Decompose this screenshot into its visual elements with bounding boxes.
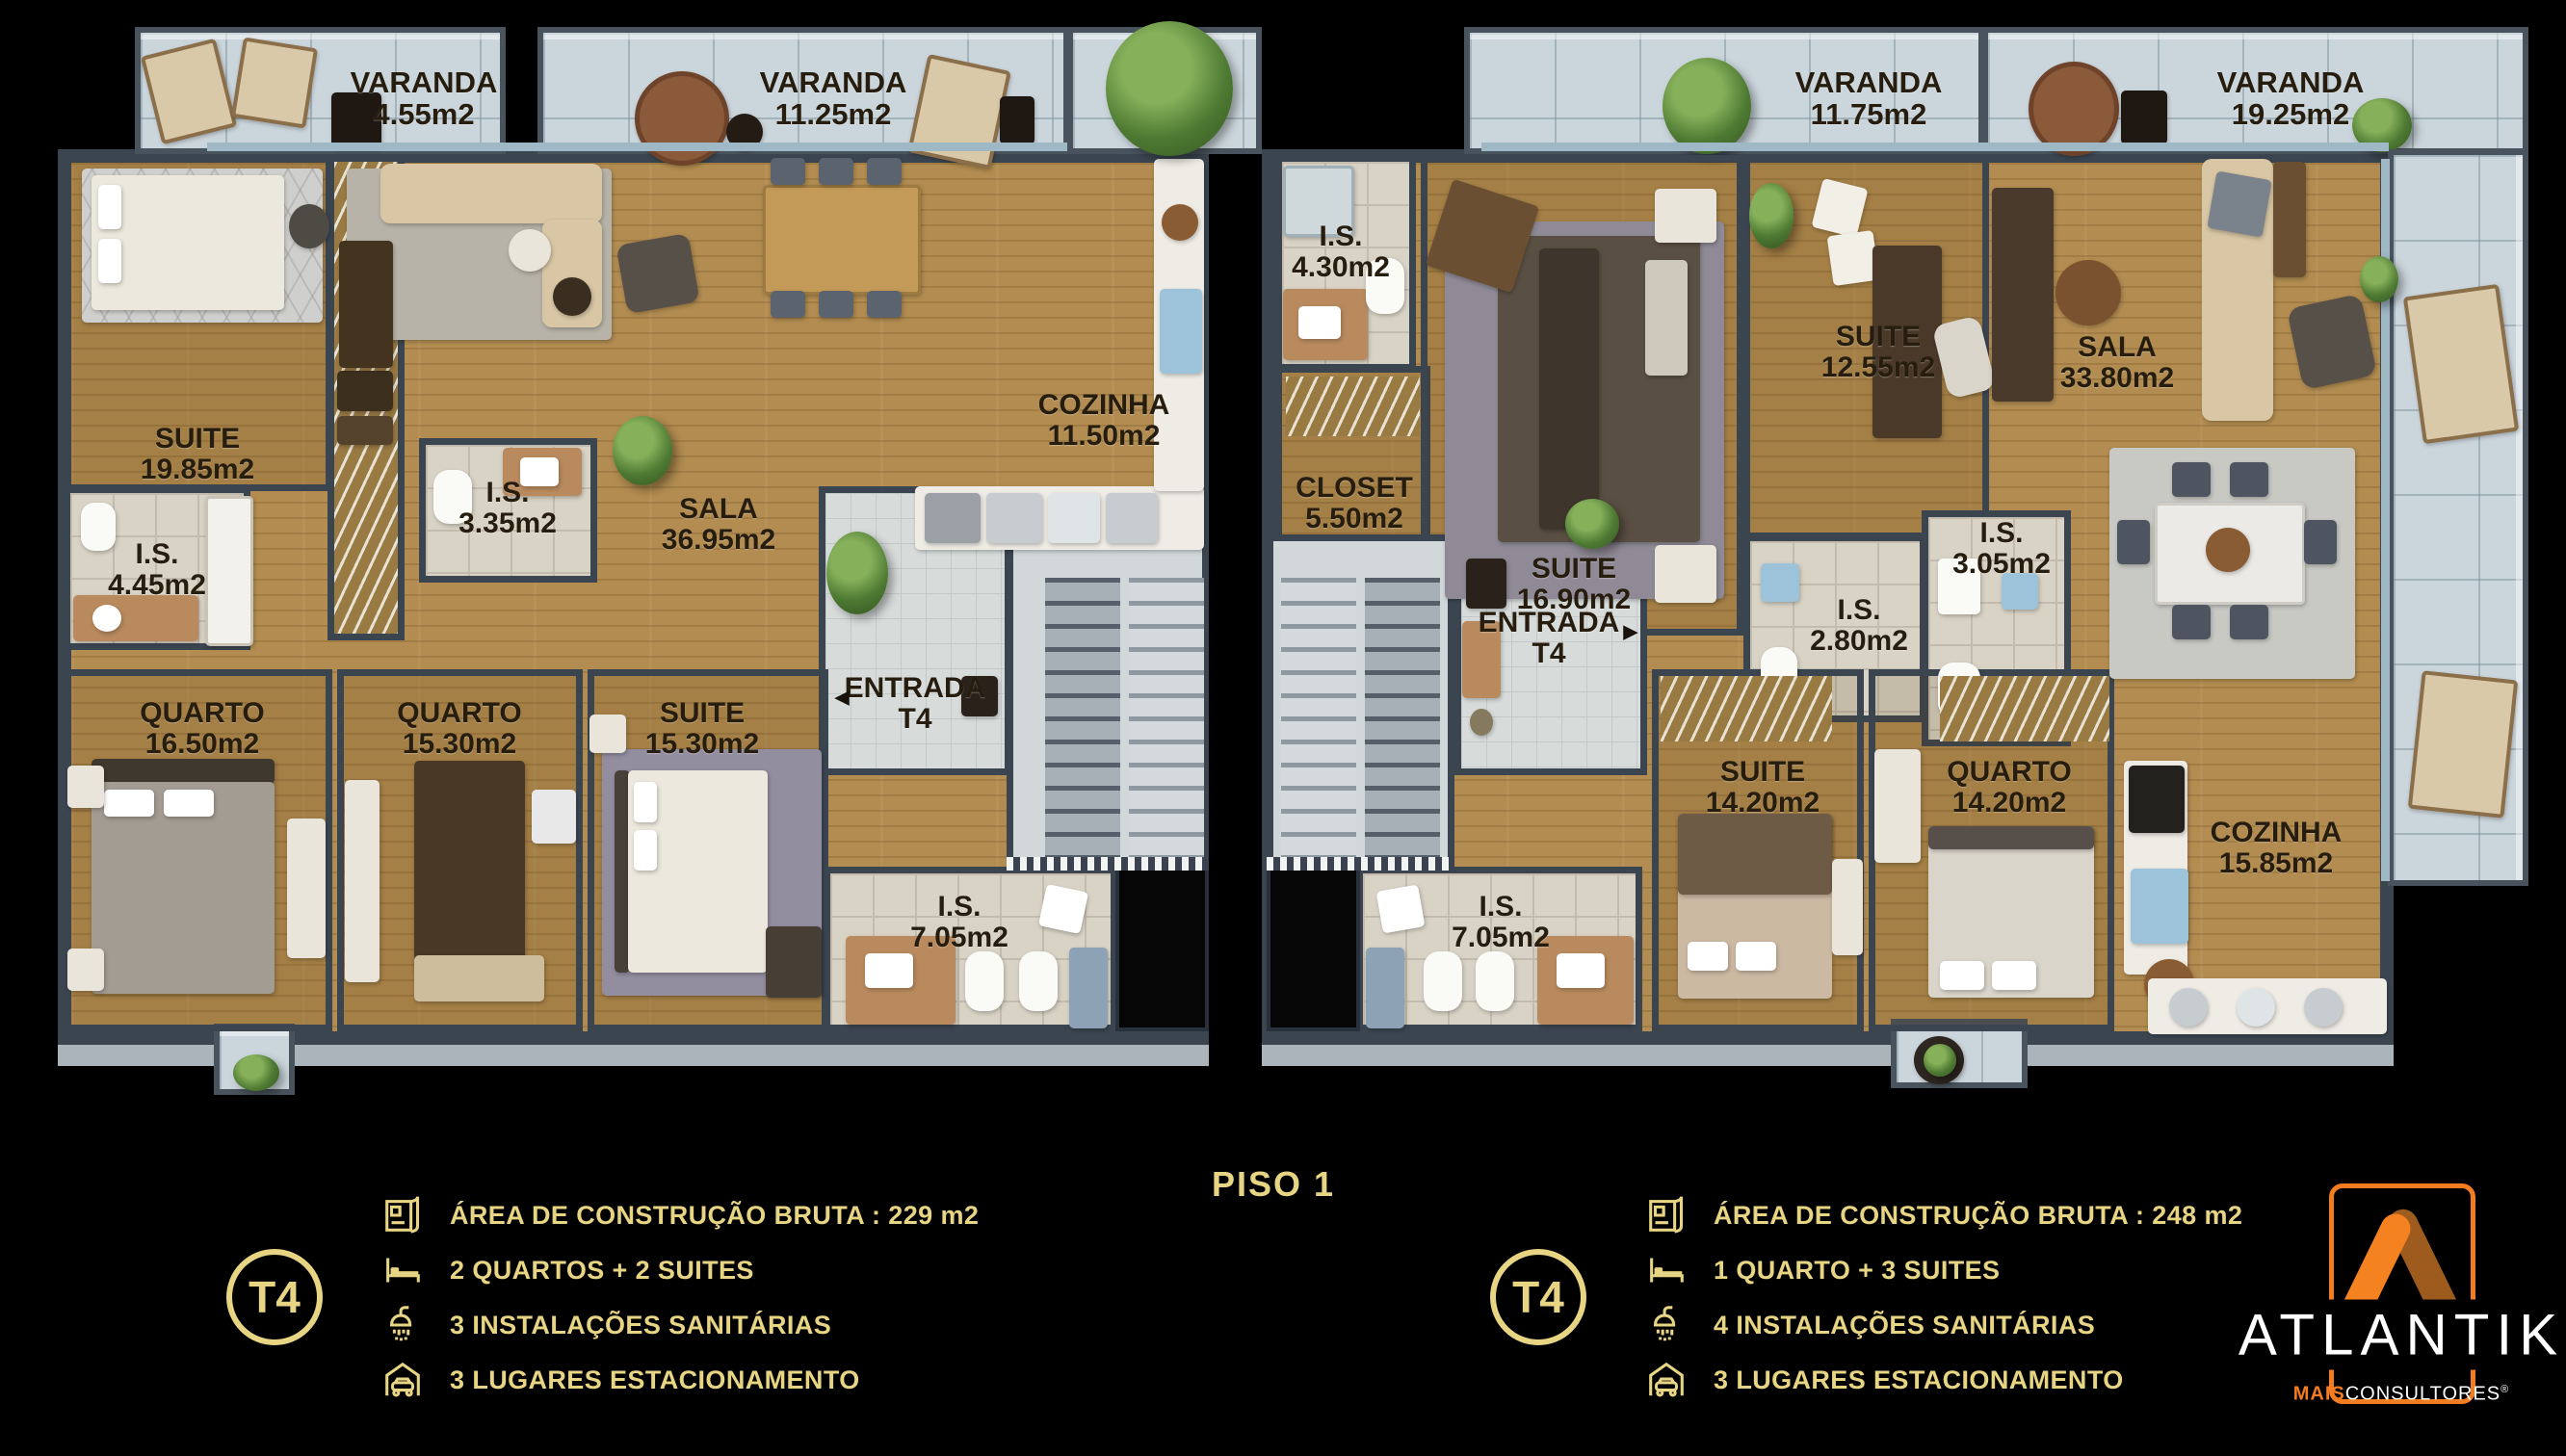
balcony-stub-left <box>214 1024 295 1095</box>
floor-mat <box>2121 91 2167 144</box>
plant <box>1924 1044 1956 1077</box>
stair-threshold <box>1267 857 1454 871</box>
bench <box>766 926 822 998</box>
sink <box>865 953 913 988</box>
chair <box>2230 605 2268 639</box>
legend-row: ÁREA DE CONSTRUÇÃO BRUTA : 229 m2 <box>380 1190 979 1240</box>
pillow <box>104 790 154 817</box>
balcony-label: VARANDA11.25m2 <box>760 66 907 130</box>
brand-sub-bold: MAIS <box>2293 1384 2345 1405</box>
shower-icon <box>1644 1303 1689 1347</box>
legend-value: 229 m2 <box>888 1201 979 1230</box>
sink <box>1298 306 1341 339</box>
room-label: SUITE14.20m2 <box>1706 757 1820 819</box>
floor-mat <box>1466 559 1506 609</box>
pillow <box>98 239 121 283</box>
legend-label: 3 INSTALAÇÕES SANITÁRIAS <box>450 1311 831 1339</box>
pouf-chair <box>289 204 329 248</box>
unit-type-badge: T4 <box>226 1249 323 1345</box>
plant <box>1749 183 1794 248</box>
nightstand <box>589 715 626 753</box>
chair <box>867 291 902 318</box>
plant <box>826 532 888 614</box>
room-label: QUARTO15.30m2 <box>397 698 521 760</box>
appliance <box>1048 493 1100 543</box>
unit-type-badge: T4 <box>1490 1249 1586 1345</box>
record-player <box>532 790 576 844</box>
chair <box>867 158 902 185</box>
floor-plan-icon <box>1644 1193 1689 1237</box>
appliance <box>2304 988 2343 1027</box>
chair <box>2117 520 2150 564</box>
sink <box>92 605 121 632</box>
centerpiece <box>2206 528 2250 572</box>
window-strip <box>207 143 1067 151</box>
room-label: COZINHA15.85m2 <box>2211 818 2343 879</box>
table <box>414 761 525 973</box>
garage-icon <box>1644 1358 1689 1402</box>
hanging-chair <box>635 71 729 166</box>
stair-flight <box>1365 578 1440 867</box>
balcony-label: VARANDA19.25m2 <box>2217 66 2365 130</box>
toilet <box>965 951 1004 1011</box>
chair <box>2304 520 2337 564</box>
entrance-arrow-icon: ◄ <box>829 683 854 713</box>
floor-plan-icon <box>380 1193 425 1237</box>
legend-label: 4 INSTALAÇÕES SANITÁRIAS <box>1714 1311 2095 1339</box>
chair <box>2172 605 2211 639</box>
kitchen-sink <box>2131 869 2188 944</box>
wardrobe <box>1940 676 2109 741</box>
stair-flight <box>1129 578 1204 867</box>
room-label: SUITE15.30m2 <box>645 698 759 760</box>
brand-subtitle: MAISCONSULTORES® <box>2293 1384 2510 1406</box>
shower-panel <box>1069 948 1108 1028</box>
legend-row: 3 LUGARES ESTACIONAMENTO <box>1644 1355 2124 1405</box>
legend-row: 3 INSTALAÇÕES SANITÁRIAS <box>380 1300 831 1350</box>
floor-plan-canvas: VARANDA4.55m2 VARANDA11.25m2 VARANDA11.7… <box>0 0 2566 1456</box>
room-label: I.S.3.05m2 <box>1952 518 2051 580</box>
bed-icon <box>1644 1248 1689 1292</box>
toilet <box>1476 951 1514 1011</box>
plant <box>1565 499 1619 549</box>
stair-flight <box>1045 578 1120 867</box>
balcony-label: VARANDA11.75m2 <box>1795 66 1943 130</box>
towel <box>1376 885 1426 934</box>
tv-console <box>339 241 393 368</box>
chair <box>771 291 805 318</box>
plant <box>613 416 672 485</box>
console <box>2273 162 2306 277</box>
pillow <box>1992 961 2036 990</box>
balcony-right-side <box>2388 149 2528 886</box>
legend-row: 2 QUARTOS + 2 SUITES <box>380 1245 754 1295</box>
room-label: ENTRADAT4 <box>1479 608 1620 669</box>
wardrobe-box <box>337 416 393 445</box>
deck-chair <box>907 54 1011 169</box>
pillow <box>1688 942 1728 971</box>
bed-icon <box>380 1248 425 1292</box>
window-strip <box>1481 143 2389 151</box>
shower-icon <box>380 1303 425 1347</box>
appliance <box>2237 988 2275 1027</box>
nightstand <box>1655 545 1716 603</box>
brand-name: ATLANTIK <box>2229 1300 2566 1370</box>
cooktop <box>925 493 981 543</box>
legend-label: 3 LUGARES ESTACIONAMENTO <box>450 1365 860 1394</box>
room-label: I.S.7.05m2 <box>1452 892 1550 953</box>
balcony-label: VARANDA4.55m2 <box>351 66 498 130</box>
plant <box>233 1054 279 1091</box>
chair <box>819 291 853 318</box>
nightstand <box>1655 189 1716 243</box>
chair <box>2172 462 2211 497</box>
wardrobe-box <box>1874 749 1921 863</box>
pillow <box>164 790 214 817</box>
bed-throw <box>1678 814 1832 895</box>
legend-row: ÁREA DE CONSTRUÇÃO BRUTA : 248 m2 <box>1644 1190 2242 1240</box>
coffee-table <box>509 229 551 272</box>
dining-table <box>763 185 921 295</box>
round-sink <box>1162 204 1198 241</box>
room-label: SUITE19.85m2 <box>141 424 254 485</box>
stair-threshold <box>1007 857 1209 871</box>
room-label: CLOSET5.50m2 <box>1296 473 1413 534</box>
room-label: I.S.4.45m2 <box>108 539 206 601</box>
page-title: PISO 1 <box>1212 1164 1335 1205</box>
sideboard <box>1992 188 2054 402</box>
room-label: SALA33.80m2 <box>2060 332 2174 394</box>
dresser <box>287 819 326 958</box>
toilet <box>1424 951 1462 1011</box>
room-label: I.S.2.80m2 <box>1810 595 1908 657</box>
legend-row: 4 INSTALAÇÕES SANITÁRIAS <box>1644 1300 2095 1350</box>
plant <box>2360 256 2398 302</box>
garage-icon <box>380 1358 425 1402</box>
wardrobe <box>1661 676 1832 741</box>
pillow <box>634 782 657 822</box>
room-label: SALA36.95m2 <box>662 494 775 556</box>
pillow <box>1940 961 1984 990</box>
kitchen-sink <box>986 493 1042 543</box>
room-label: QUARTO16.50m2 <box>140 698 264 760</box>
chair <box>771 158 805 185</box>
sink <box>1557 953 1605 988</box>
deck-chair <box>231 37 318 128</box>
desk <box>345 780 380 982</box>
bed-throw <box>1539 248 1599 530</box>
cooktop <box>2129 766 2185 833</box>
coffee-table <box>553 277 591 316</box>
pillow <box>98 185 121 229</box>
wardrobe-box <box>337 371 393 411</box>
plant <box>1663 58 1751 154</box>
deck-chair <box>2403 284 2519 444</box>
shower-panel <box>1366 948 1404 1028</box>
kitchen-sink <box>1160 289 1202 374</box>
tree-plant <box>1106 21 1233 156</box>
room-label: COZINHA11.50m2 <box>1038 390 1170 452</box>
bathtub <box>205 496 253 646</box>
nightstand <box>67 766 104 808</box>
legend-value: 248 m2 <box>2152 1201 2242 1230</box>
pillow <box>1645 260 1688 376</box>
legend-row: 1 QUARTO + 3 SUITES <box>1644 1245 2000 1295</box>
toilet <box>1019 951 1058 1011</box>
tripod-lamp <box>1470 709 1493 736</box>
brand-sub-rest: CONSULTORES <box>2345 1384 2501 1405</box>
pillow <box>634 830 657 871</box>
legend-row: 3 LUGARES ESTACIONAMENTO <box>380 1355 860 1405</box>
towel <box>1038 884 1088 934</box>
floor-mat <box>1000 96 1034 144</box>
room-label: SUITE12.55m2 <box>1821 322 1935 383</box>
entrance-arrow-icon: ► <box>1618 617 1643 647</box>
legend-label: ÁREA DE CONSTRUÇÃO BRUTA : <box>1714 1201 2144 1230</box>
pillow <box>1736 942 1776 971</box>
sofa-throw <box>2207 170 2272 237</box>
sofa <box>380 164 602 223</box>
stair-flight <box>1281 578 1356 867</box>
legend-label: 2 QUARTOS + 2 SUITES <box>450 1256 754 1285</box>
elevator-shaft <box>1267 867 1360 1031</box>
sink <box>1761 563 1799 602</box>
legend-label: 1 QUARTO + 3 SUITES <box>1714 1256 2000 1285</box>
room-label: ENTRADAT4 <box>845 673 986 735</box>
daybed <box>414 955 544 1001</box>
deck-chair <box>2408 670 2519 819</box>
coffee-table <box>2055 260 2121 325</box>
chair <box>2230 462 2268 497</box>
footboard <box>1928 826 2094 849</box>
room-label: I.S.7.05m2 <box>910 892 1008 953</box>
dresser <box>1832 859 1863 955</box>
room-label: I.S.3.35m2 <box>458 478 557 539</box>
deck-chair <box>141 39 237 145</box>
chair <box>819 158 853 185</box>
appliance <box>1106 493 1158 543</box>
wardrobe <box>1286 377 1420 436</box>
legend-label: ÁREA DE CONSTRUÇÃO BRUTA : <box>450 1201 880 1230</box>
room-label: I.S.4.30m2 <box>1292 221 1390 283</box>
headboard <box>92 759 275 784</box>
exterior-ledge <box>1262 1045 2394 1066</box>
armchair <box>615 233 699 314</box>
registered-mark-icon: ® <box>2501 1384 2509 1395</box>
room-label: QUARTO14.20m2 <box>1947 757 2071 819</box>
elevator-shaft <box>1115 867 1209 1031</box>
legend-label: 3 LUGARES ESTACIONAMENTO <box>1714 1365 2124 1394</box>
appliance <box>2169 988 2208 1027</box>
nightstand <box>67 949 104 991</box>
